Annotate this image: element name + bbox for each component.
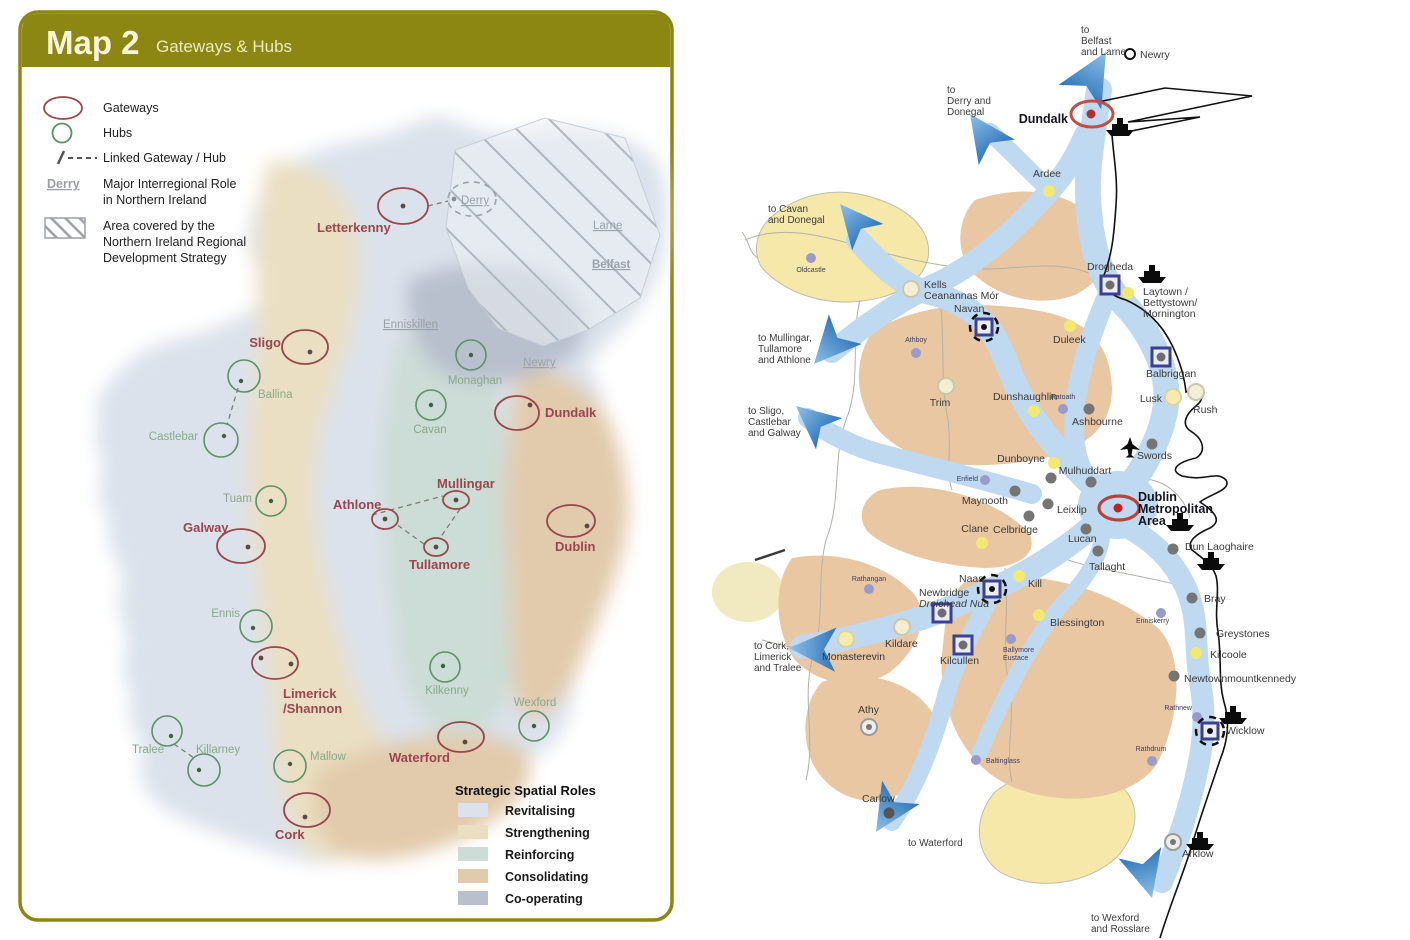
- town-marker-balbriggan: [1152, 348, 1170, 366]
- label-belfast: Belfast: [592, 259, 631, 271]
- label-derry-ni: Derry: [461, 195, 489, 207]
- town-label-celbridge: Celbridge: [993, 524, 1038, 536]
- town-label-maynooth: Maynooth: [962, 495, 1008, 507]
- town-label-kells-2: Ceanannas Mór: [924, 290, 999, 302]
- town-marker-leixlip: [1043, 499, 1054, 510]
- town-marker-ashbourne: [1084, 404, 1095, 415]
- town-label-laytown-3: Mornington: [1143, 308, 1196, 320]
- town-label-duleek: Duleek: [1053, 334, 1086, 346]
- legend-area-line1: Area covered by the: [103, 219, 215, 233]
- town-label-blessington: Blessington: [1050, 617, 1104, 629]
- town-marker-blessington: [1033, 609, 1045, 621]
- town-label-monasterevin: Monasterevin: [822, 651, 885, 663]
- town-marker-dunshaughlin: [1028, 405, 1040, 417]
- legend-hatch-swatch: [45, 218, 85, 238]
- town-label-athboy: Athboy: [905, 337, 927, 344]
- town-label-kill: Kill: [1028, 578, 1042, 590]
- town-marker-enniskerry: [1156, 608, 1166, 618]
- label-monaghan: Monaghan: [448, 375, 502, 387]
- town-label-lusk: Lusk: [1140, 393, 1163, 405]
- label-larne: Larne: [593, 220, 622, 232]
- label-mullingar: Mullingar: [437, 476, 495, 491]
- town-label-newtownmountkennedy: Newtownmountkennedy: [1184, 673, 1297, 685]
- label-galway: Galway: [183, 520, 229, 535]
- legend-hubs-label: Hubs: [103, 126, 132, 140]
- ferry-icon-drogheda: [1138, 265, 1166, 283]
- town-label-wicklow: Wicklow: [1226, 725, 1265, 737]
- town-marker-kildare: [894, 619, 910, 635]
- town-marker-kells: [903, 281, 919, 297]
- town-marker-dundalk: [1087, 110, 1096, 119]
- label-ballina: Ballina: [258, 389, 293, 401]
- town-marker-laytown: [1122, 287, 1134, 299]
- town-label-lucan: Lucan: [1068, 533, 1097, 545]
- label-shannon: /Shannon: [283, 701, 342, 716]
- roles-label-revitalising: Revitalising: [505, 804, 575, 818]
- route-mullingar-1: to Mullingar,: [758, 333, 812, 344]
- route-mullingar-2: Tullamore: [758, 344, 803, 355]
- town-marker-carlow: [884, 808, 895, 819]
- town-label-rathangan: Rathangan: [852, 576, 886, 583]
- town-marker-oldcastle: [806, 253, 816, 263]
- town-marker-enfield: [980, 475, 990, 485]
- rural-area-west: [712, 562, 784, 622]
- town-marker-maynooth: [1010, 486, 1021, 497]
- route-cork-3: and Tralee: [754, 663, 802, 674]
- town-marker-arklow: [1165, 834, 1181, 850]
- roles-label-cooperating: Co-operating: [505, 892, 583, 906]
- town-marker-dunlaoghaire: [1168, 544, 1179, 555]
- route-sligo-1: to Sligo,: [748, 406, 784, 417]
- legend-linked-label: Linked Gateway / Hub: [103, 151, 226, 165]
- roles-swatch-revitalising: [458, 803, 488, 817]
- route-belfast-2: Belfast: [1081, 36, 1112, 47]
- label-limerick: Limerick: [283, 686, 337, 701]
- town-marker-greystones: [1195, 628, 1206, 639]
- route-mullingar-3: and Athlone: [758, 355, 811, 366]
- town-marker-ratoath: [1058, 404, 1068, 414]
- route-derry-2: Derry and: [947, 96, 991, 107]
- town-label-mulhuddart: Mulhuddart: [1059, 465, 1112, 477]
- town-label-balbriggan: Balbriggan: [1146, 368, 1196, 380]
- roles-swatch-consolidating: [458, 869, 488, 883]
- label-newry: Newry: [523, 357, 556, 369]
- legend-derry-sample: Derry: [47, 177, 80, 191]
- route-cork-2: Limerick: [754, 652, 792, 663]
- town-label-dunshaughlin: Dunshaughlin: [993, 391, 1057, 403]
- town-label-enniskerry: Enniskerry: [1136, 618, 1170, 625]
- town-label-rathdrum: Rathdrum: [1136, 746, 1167, 753]
- route-belfast-1: to: [1081, 25, 1090, 36]
- map2-subtitle: Gateways & Hubs: [156, 37, 292, 56]
- town-label-ardee: Ardee: [1033, 168, 1061, 180]
- town-label-drogheda: Drogheda: [1087, 261, 1133, 273]
- town-label-naas: Naas: [959, 573, 984, 585]
- town-label-dunlaoghaire: Dun Laoghaire: [1185, 541, 1254, 553]
- map2-title: Map 2: [46, 24, 140, 61]
- label-sligo: Sligo: [249, 335, 281, 350]
- label-cork: Cork: [275, 827, 305, 842]
- ferry-icon-dunlaoghaire: [1197, 552, 1225, 570]
- town-label-kilcoole: Kilcoole: [1210, 649, 1247, 661]
- town-marker-bray: [1187, 593, 1198, 604]
- legend-area-line2: Northern Ireland Regional: [103, 235, 246, 249]
- label-wexford: Wexford: [514, 697, 557, 709]
- route-cork-1: to Cork,: [754, 641, 789, 652]
- roles-label-consolidating: Consolidating: [505, 870, 588, 884]
- town-label-oldcastle: Oldcastle: [796, 267, 825, 274]
- town-marker-swords: [1147, 439, 1158, 450]
- town-label-ballymore-2: Eustace: [1003, 655, 1028, 662]
- legend-major-role-line1: Major Interregional Role: [103, 177, 236, 191]
- town-label-carlow: Carlow: [862, 793, 895, 805]
- legend-major-role-line2: in Northern Ireland: [103, 193, 207, 207]
- label-dundalk: Dundalk: [545, 405, 597, 420]
- route-sligo-3: and Galway: [748, 428, 801, 439]
- town-label-ballymore-1: Ballymore: [1003, 647, 1034, 654]
- label-dublin: Dublin: [555, 539, 595, 554]
- town-marker-ardee: [1043, 185, 1055, 197]
- route-wexford-1: to Wexford: [1091, 913, 1139, 924]
- map2-panel: Map 2 Gateways & Hubs Gateways Hubs Link…: [0, 0, 1410, 940]
- label-tuam: Tuam: [223, 493, 252, 505]
- town-marker-rathdrum: [1147, 756, 1157, 766]
- town-marker-newry: [1125, 49, 1135, 59]
- town-label-dundalk: Dundalk: [1019, 112, 1068, 126]
- route-derry-1: to: [947, 85, 956, 96]
- town-label-kilcullen: Kilcullen: [940, 655, 979, 667]
- town-marker-lusk: [1165, 389, 1181, 405]
- town-label-rathnew: Rathnew: [1164, 705, 1193, 712]
- town-label-baltinglass: Baltinglass: [986, 758, 1020, 765]
- town-marker-duleek: [1064, 320, 1076, 332]
- town-label-ratoath: Ratoath: [1051, 394, 1076, 401]
- gda-map: to Belfast and Larne to Derry and Donega…: [712, 25, 1297, 938]
- legend-area-line3: Development Strategy: [103, 251, 227, 265]
- roles-legend-title: Strategic Spatial Roles: [455, 783, 596, 798]
- town-marker-clane: [976, 537, 988, 549]
- town-marker-dublin: [1114, 504, 1123, 513]
- label-enniskillen: Enniskillen: [383, 319, 438, 331]
- town-marker-ballymore: [1006, 634, 1016, 644]
- town-marker-kilcoole: [1190, 647, 1202, 659]
- town-label-leixlip: Leixlip: [1057, 504, 1087, 516]
- town-marker-athy: [861, 719, 877, 735]
- town-label-clane: Clane: [961, 523, 989, 535]
- roles-swatch-strengthening: [458, 825, 488, 839]
- label-tralee: Tralee: [132, 744, 164, 756]
- route-waterford: to Waterford: [908, 838, 963, 849]
- label-kilkenny: Kilkenny: [425, 685, 469, 697]
- town-label-navan: Navan: [954, 303, 985, 315]
- town-marker-monasterevin: [838, 631, 854, 647]
- town-label-arklow: Arklow: [1182, 848, 1214, 860]
- town-marker-kilcullen: [954, 636, 972, 654]
- town-label-swords: Swords: [1137, 450, 1172, 462]
- town-marker-drogheda: [1101, 276, 1119, 294]
- boundary-fragment: [755, 550, 785, 560]
- town-marker-kilcock: [1046, 473, 1057, 484]
- label-tullamore: Tullamore: [409, 557, 470, 572]
- route-belfast-3: and Larne: [1081, 47, 1126, 58]
- route-cavan-1: to Cavan: [768, 204, 808, 215]
- town-label-dublin-3: Area: [1138, 514, 1167, 528]
- town-marker-newtownmountkennedy: [1169, 671, 1180, 682]
- route-wexford-2: and Rosslare: [1091, 924, 1150, 935]
- town-label-trim: Trim: [930, 397, 951, 409]
- label-killarney: Killarney: [196, 744, 240, 756]
- town-label-newry: Newry: [1140, 49, 1171, 61]
- label-castlebar: Castlebar: [149, 431, 198, 443]
- town-label-greystones: Greystones: [1216, 628, 1270, 640]
- route-sligo-2: Castlebar: [748, 417, 791, 428]
- town-marker-baltinglass: [971, 755, 981, 765]
- legend-gateways-label: Gateways: [103, 101, 159, 115]
- roles-swatch-reinforcing: [458, 847, 488, 861]
- town-label-kildare: Kildare: [885, 638, 918, 650]
- town-label-ashbourne: Ashbourne: [1072, 416, 1123, 428]
- label-letterkenny: Letterkenny: [317, 220, 391, 235]
- route-derry-3: Donegal: [947, 107, 984, 118]
- label-mallow: Mallow: [310, 751, 346, 763]
- label-ennis: Ennis: [211, 608, 240, 620]
- town-marker-trim: [938, 378, 954, 394]
- label-athlone: Athlone: [333, 497, 381, 512]
- label-waterford: Waterford: [389, 750, 450, 765]
- town-label-enfield: Enfield: [957, 476, 979, 483]
- town-marker-kill: [1013, 570, 1025, 582]
- town-label-rush: Rush: [1193, 404, 1218, 416]
- roles-swatch-cooperating: [458, 891, 488, 905]
- derry-dot: [452, 197, 457, 202]
- town-label-bray: Bray: [1204, 593, 1226, 605]
- roles-label-strengthening: Strengthening: [505, 826, 590, 840]
- town-label-tallaght: Tallaght: [1089, 561, 1125, 573]
- town-label-athy: Athy: [858, 704, 880, 716]
- town-label-newbridge-2: Droichead Nua: [919, 598, 989, 610]
- town-marker-tallaght: [1093, 546, 1104, 557]
- town-marker-mulhuddart: [1086, 477, 1097, 488]
- roles-label-reinforcing: Reinforcing: [505, 848, 574, 862]
- town-marker-celbridge: [1024, 511, 1035, 522]
- town-label-dunboyne: Dunboyne: [997, 453, 1045, 465]
- ferry-icon-wicklow: [1219, 706, 1247, 724]
- town-marker-rush: [1188, 384, 1204, 400]
- label-cavan: Cavan: [413, 424, 446, 436]
- town-marker-rathangan: [864, 584, 874, 594]
- page: Map 2 Gateways & Hubs Gateways Hubs Link…: [0, 0, 1410, 940]
- town-marker-athboy: [911, 348, 921, 358]
- route-cavan-2: and Donegal: [768, 215, 825, 226]
